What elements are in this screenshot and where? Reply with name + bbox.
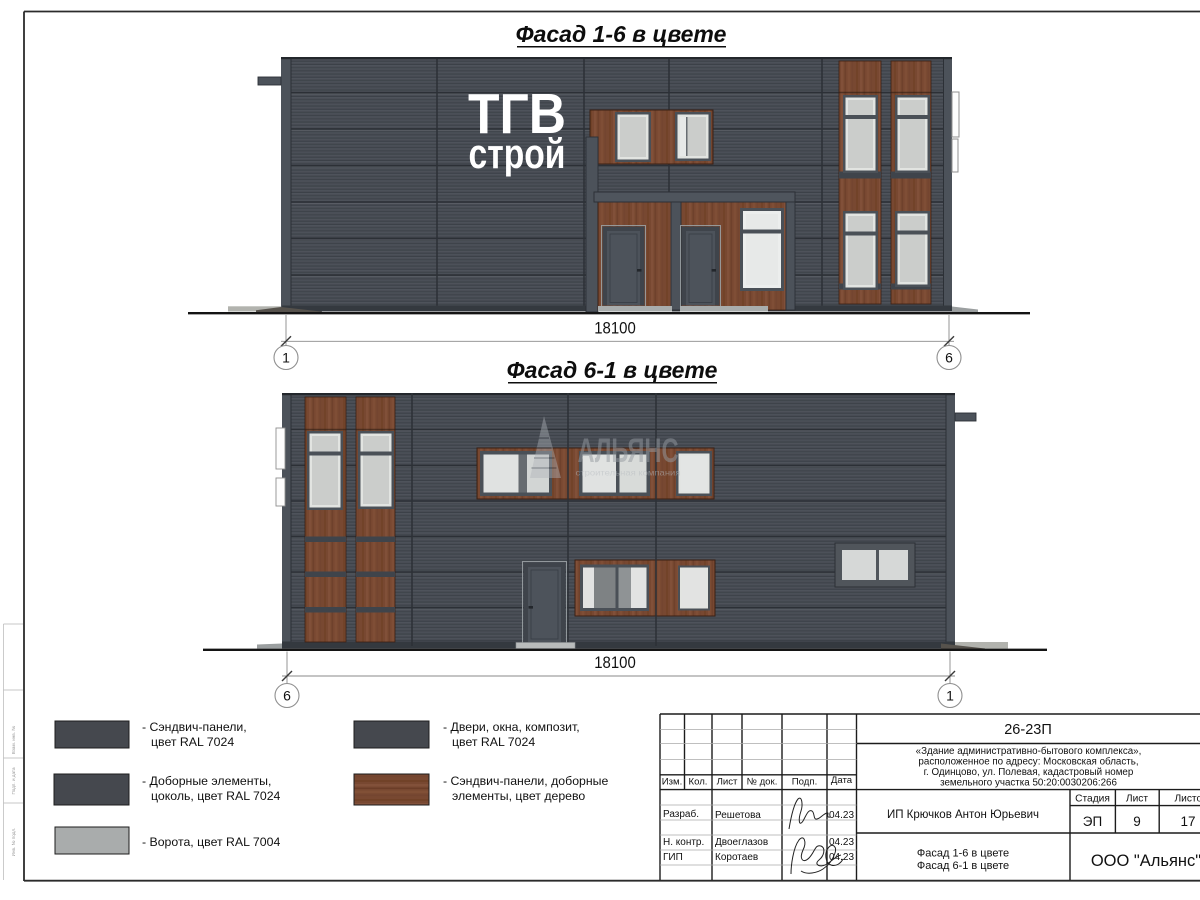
- svg-text:цвет RAL 7024: цвет RAL 7024: [452, 735, 535, 749]
- svg-text:Листов: Листов: [1174, 794, 1200, 805]
- svg-text:1: 1: [282, 350, 290, 366]
- svg-text:Фасад 6-1 в цвете: Фасад 6-1 в цвете: [507, 357, 718, 383]
- svg-text:- Сэндвич-панели, доборные: - Сэндвич-панели, доборные: [443, 774, 608, 788]
- svg-text:1: 1: [946, 688, 954, 704]
- svg-text:элементы, цвет дерево: элементы, цвет дерево: [452, 789, 585, 803]
- svg-text:17: 17: [1180, 814, 1195, 829]
- svg-text:ЭП: ЭП: [1083, 814, 1102, 829]
- svg-text:ГИП: ГИП: [663, 852, 683, 863]
- svg-text:Подп.: Подп.: [792, 777, 817, 788]
- svg-text:Подп. и дата: Подп. и дата: [11, 767, 16, 795]
- svg-text:Фасад 6-1 в цвете: Фасад 6-1 в цвете: [917, 860, 1009, 872]
- svg-text:Кол.: Кол.: [689, 777, 708, 788]
- svg-text:Изм.: Изм.: [662, 777, 683, 788]
- svg-text:6: 6: [945, 350, 953, 366]
- svg-text:Инв. № подл.: Инв. № подл.: [11, 828, 16, 857]
- svg-text:цоколь, цвет RAL 7024: цоколь, цвет RAL 7024: [151, 789, 281, 803]
- svg-text:- Сэндвич-панели,: - Сэндвич-панели,: [142, 720, 247, 734]
- svg-text:№ док.: № док.: [747, 777, 778, 788]
- svg-text:ИП Крючков Антон Юрьевич: ИП Крючков Антон Юрьевич: [887, 809, 1039, 821]
- svg-text:Лист: Лист: [1126, 794, 1148, 805]
- svg-text:строительная компания: строительная компания: [576, 469, 681, 478]
- svg-text:строй: строй: [469, 130, 566, 177]
- svg-text:Двоеглазов: Двоеглазов: [715, 837, 768, 848]
- svg-text:Фасад 1-6 в цвете: Фасад 1-6 в цвете: [917, 848, 1009, 860]
- svg-text:- Доборные элементы,: - Доборные элементы,: [142, 774, 271, 788]
- svg-text:- Двери, окна, композит,: - Двери, окна, композит,: [443, 720, 580, 734]
- svg-text:Лист: Лист: [717, 777, 738, 788]
- svg-text:04.23: 04.23: [829, 810, 854, 821]
- svg-text:18100: 18100: [594, 320, 636, 338]
- svg-text:- Ворота, цвет RAL 7004: - Ворота, цвет RAL 7004: [142, 835, 280, 849]
- svg-text:«Здание административно-бытово: «Здание административно-бытового комплек…: [916, 746, 1142, 757]
- svg-text:Дата: Дата: [831, 775, 853, 786]
- svg-text:ООО "Альянс": ООО "Альянс": [1091, 852, 1200, 870]
- svg-text:6: 6: [283, 688, 291, 704]
- svg-text:расположенное по адресу: Моско: расположенное по адресу: Московская обла…: [918, 757, 1138, 768]
- svg-text:18100: 18100: [594, 654, 636, 672]
- svg-text:цвет RAL 7024: цвет RAL 7024: [151, 735, 234, 749]
- svg-text:АЛЬЯНС: АЛЬЯНС: [578, 432, 679, 470]
- svg-text:26-23П: 26-23П: [1004, 722, 1052, 738]
- svg-text:Решетова: Решетова: [715, 810, 761, 821]
- svg-text:Фасад 1-6 в цвете: Фасад 1-6 в цвете: [516, 21, 727, 47]
- svg-text:Разраб.: Разраб.: [663, 808, 699, 820]
- svg-text:9: 9: [1133, 814, 1141, 829]
- svg-text:Стадия: Стадия: [1075, 794, 1110, 805]
- svg-text:Взам. инв. №: Взам. инв. №: [11, 726, 16, 755]
- svg-text:Коротаев: Коротаев: [715, 852, 758, 863]
- svg-text:земельного участка 50:20:00302: земельного участка 50:20:0030206:266: [940, 778, 1117, 789]
- svg-text:04.23: 04.23: [829, 837, 854, 848]
- svg-text:Н. контр.: Н. контр.: [663, 837, 704, 848]
- svg-text:г. Одинцово, ул. Полевая, када: г. Одинцово, ул. Полевая, кадастровый но…: [924, 767, 1134, 778]
